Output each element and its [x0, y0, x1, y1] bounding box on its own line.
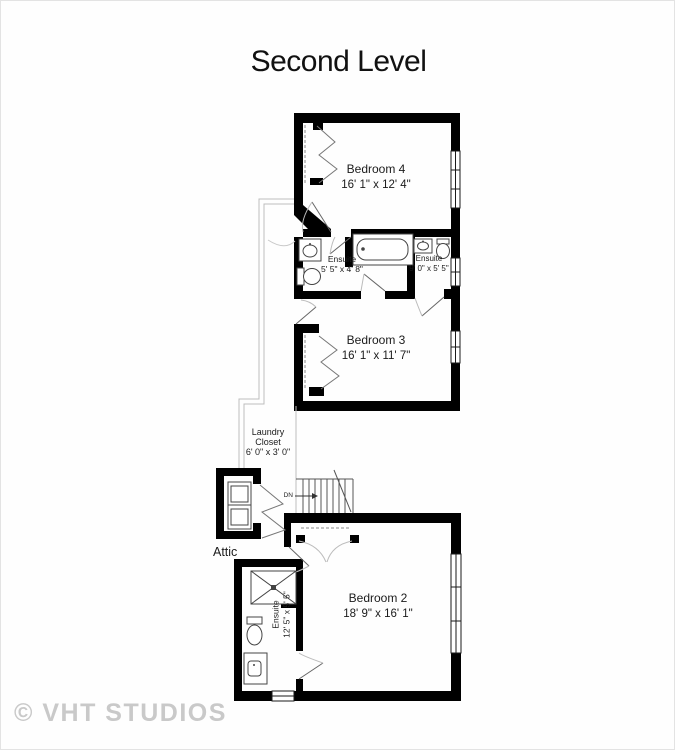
bedroom4-label: Bedroom 4 16' 1" x 12' 4" [296, 161, 456, 193]
floorplan-canvas: Second Level Bedroom 4 16' 1" x 12' 4" E… [0, 0, 675, 750]
ensuite2-name: Ensuite [271, 573, 282, 657]
stair-railing [239, 199, 296, 513]
ensuite-top-left-label: Ensuite 5' 5" x 4' 8" [312, 254, 372, 274]
bedroom4-dims: 16' 1" x 12' 4" [296, 177, 456, 193]
attic-label: Attic [213, 545, 263, 559]
ensuite-top-right-dims: 9' 0" x 5' 5" [401, 264, 457, 274]
ensuite-top-left-name: Ensuite [312, 254, 372, 264]
tub-area-door [361, 274, 385, 291]
ensuite-right-door [415, 297, 444, 316]
floorplan-drawing [1, 1, 675, 750]
toilet-icon-ensuite2 [247, 617, 262, 645]
bedroom3-name: Bedroom 3 [296, 332, 456, 348]
ensuite2-dims: 12' 5" x 5' 5" [281, 573, 292, 657]
vht-studios-watermark: © VHT STUDIOS [14, 699, 414, 728]
bedroom3-entry-door [296, 300, 316, 324]
sink-icon-ensuite2 [244, 653, 267, 684]
bedroom2-name: Bedroom 2 [298, 590, 458, 606]
bedroom3-dims: 16' 1" x 11' 7" [296, 348, 456, 364]
ensuite-top-left-dims: 5' 5" x 4' 8" [312, 264, 372, 274]
laundry-closet-name1: Laundry [233, 427, 303, 437]
stairs [295, 470, 353, 513]
laundry-closet-label: Laundry Closet 6' 0" x 3' 0" [233, 427, 303, 457]
bedroom3-label: Bedroom 3 16' 1" x 11' 7" [296, 332, 456, 364]
bedroom2-dims: 18' 9" x 16' 1" [298, 606, 458, 622]
page-title: Second Level [1, 45, 675, 79]
ensuite2-label: Ensuite 12' 5" x 5' 5" [271, 573, 292, 657]
laundry-closet-dims: 6' 0" x 3' 0" [233, 447, 303, 457]
bedroom2-closet-doors [299, 541, 352, 562]
sink-icon-ensuite-right [414, 239, 432, 253]
bedroom4-name: Bedroom 4 [296, 161, 456, 177]
washer-dryer [228, 482, 251, 529]
stairs-down-label: DN [271, 492, 293, 499]
ensuite-top-right-name: Ensuite [401, 254, 457, 264]
ensuite2-door [299, 653, 323, 679]
laundry-closet-name2: Closet [233, 437, 303, 447]
bedroom2-label: Bedroom 2 18' 9" x 16' 1" [298, 590, 458, 622]
ensuite-top-right-label: Ensuite 9' 0" x 5' 5" [401, 254, 457, 273]
